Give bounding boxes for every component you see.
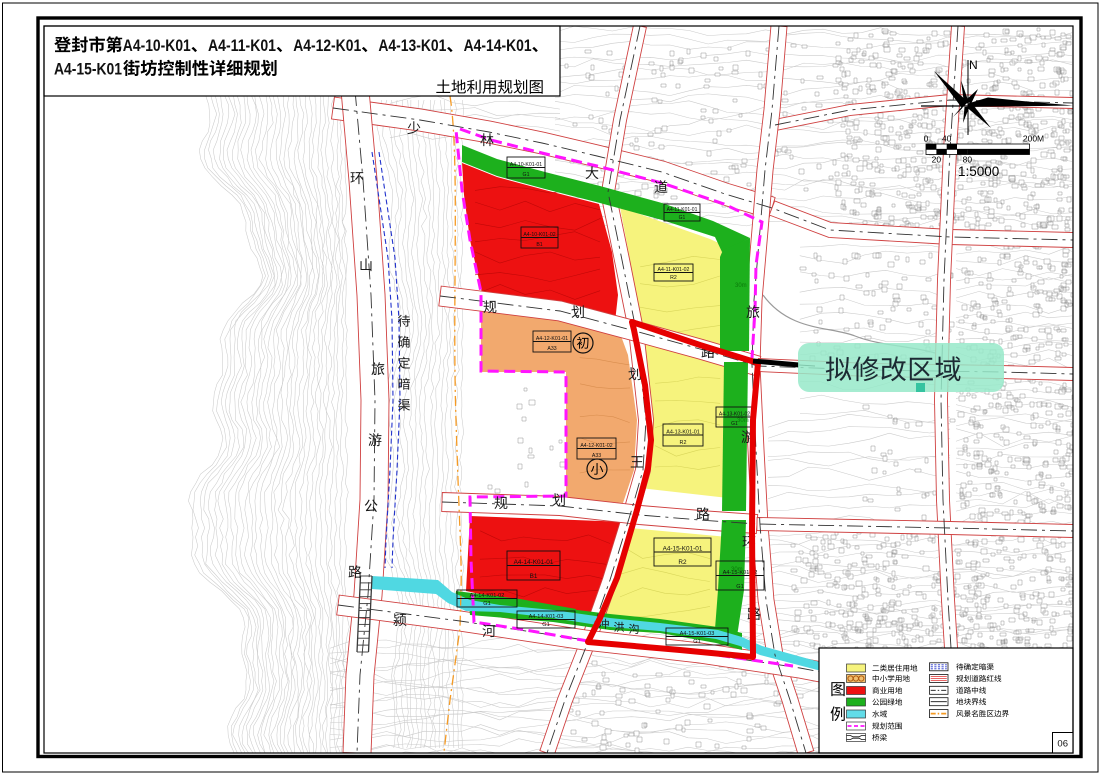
svg-text:G1: G1	[679, 215, 686, 221]
svg-text:G1: G1	[483, 601, 490, 607]
svg-text:R2: R2	[680, 440, 687, 446]
svg-text:A4-15-K01: A4-15-K01	[54, 61, 122, 79]
svg-text:A4-10-K01: A4-10-K01	[123, 37, 191, 55]
svg-text:B1: B1	[530, 573, 538, 580]
svg-text:N: N	[969, 58, 978, 72]
svg-text:200M: 200M	[1023, 134, 1044, 144]
svg-text:A4-14-K01-03: A4-14-K01-03	[529, 614, 564, 620]
svg-text:G1: G1	[542, 622, 549, 628]
svg-text:30m: 30m	[731, 567, 743, 573]
svg-text:R2: R2	[670, 275, 677, 281]
svg-text:G1: G1	[523, 172, 530, 178]
svg-text:A4-12-K01-02: A4-12-K01-02	[580, 443, 612, 449]
svg-text:A4-13-K01: A4-13-K01	[378, 37, 446, 55]
svg-text:B1: B1	[536, 242, 542, 248]
svg-text:G1: G1	[736, 584, 743, 590]
svg-text:A4-13-K01-02: A4-13-K01-02	[719, 412, 750, 418]
svg-text:A4-10-K01-01: A4-10-K01-01	[510, 162, 542, 168]
svg-text:A4-10-K01-02: A4-10-K01-02	[523, 232, 555, 238]
svg-text:A4-11-K01-02: A4-11-K01-02	[658, 267, 690, 273]
svg-text:G1: G1	[693, 639, 700, 645]
svg-text:R2: R2	[678, 559, 687, 566]
svg-text:30m: 30m	[735, 283, 747, 289]
svg-text:20: 20	[932, 155, 942, 165]
svg-text:A4-14-K01-02: A4-14-K01-02	[470, 593, 505, 599]
svg-text:1:5000: 1:5000	[958, 164, 999, 179]
svg-text:A33: A33	[547, 346, 556, 352]
svg-text:A4-14-K01: A4-14-K01	[464, 37, 532, 55]
svg-text:A4-12-K01-01: A4-12-K01-01	[536, 336, 568, 342]
svg-text:A4-13-K01-01: A4-13-K01-01	[666, 430, 700, 436]
svg-text:0: 0	[924, 134, 929, 144]
svg-text:A4-11-K01-01: A4-11-K01-01	[667, 207, 698, 213]
svg-text:06: 06	[1057, 739, 1068, 750]
svg-text:A4-14-K01-01: A4-14-K01-01	[514, 559, 554, 566]
svg-text:A4-11-K01: A4-11-K01	[208, 37, 276, 55]
svg-text:30m: 30m	[737, 418, 749, 424]
svg-text:A4-15-K01-01: A4-15-K01-01	[663, 546, 703, 553]
svg-text:80: 80	[963, 155, 973, 165]
svg-text:40: 40	[942, 134, 952, 144]
svg-text:A4-15-K01-03: A4-15-K01-03	[680, 631, 715, 637]
svg-text:A33: A33	[592, 453, 601, 459]
svg-text:A4-12-K01: A4-12-K01	[293, 37, 361, 55]
